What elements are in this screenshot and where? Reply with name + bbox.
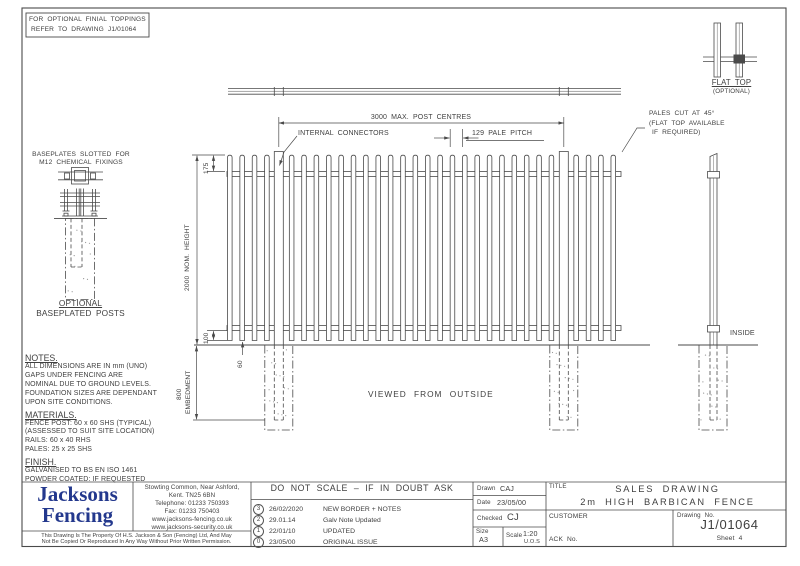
- baseplate-detail: [54, 168, 107, 300]
- date-value: 23/05/00: [497, 499, 526, 507]
- flat-top-detail: [703, 23, 757, 77]
- dim-pale-pitch: 129 PALE PITCH: [472, 130, 532, 138]
- list-line: GAPS UNDER FENCING ARE: [25, 372, 215, 381]
- revision-number: 0: [253, 537, 264, 548]
- pale: [265, 155, 270, 340]
- baseplate-caption-line1: OPTIONAL: [28, 299, 133, 308]
- do-not-scale-banner: DO NOT SCALE – IF IN DOUBT ASK: [251, 483, 473, 493]
- list-line: www.jacksons-fencing.co.uk: [134, 516, 250, 524]
- pale: [289, 155, 294, 340]
- list-line: www.jacksons-security.co.uk: [134, 524, 250, 532]
- property-notice: This Drawing Is The Property Of H.S. Jac…: [23, 533, 250, 546]
- scale-label: Scale: [506, 533, 522, 540]
- property-notice-line2: Not Be Copied Or Reproduced In Any Way W…: [23, 539, 250, 545]
- revision-row: 326/02/2020NEW BORDER + NOTES: [253, 501, 472, 512]
- drawing-sheet: FOR OPTIONAL FINIAL TOPPINGS REFER TO DR…: [0, 0, 800, 566]
- pale: [314, 155, 319, 340]
- list-line: (ASSESSED TO SUIT SITE LOCATION): [25, 428, 215, 437]
- pale: [228, 155, 233, 340]
- fence-post-left: [274, 152, 283, 346]
- pale: [388, 155, 393, 340]
- scale-value: 1:20: [523, 530, 538, 538]
- baseplate-note-line2: M12 CHEMICAL FIXINGS: [29, 159, 133, 166]
- pale: [450, 155, 455, 340]
- label-internal-connectors: INTERNAL CONNECTORS: [298, 130, 389, 138]
- dim-ground-gap: 60: [237, 360, 244, 368]
- finial-note-line2: REFER TO DRAWING J1/01064: [31, 26, 136, 33]
- pale: [611, 155, 616, 340]
- footing-right: [550, 345, 578, 430]
- property-notice-line1: This Drawing Is The Property Of H.S. Jac…: [23, 533, 250, 539]
- pales-cut-note-line2: (FLAT TOP AVAILABLE: [649, 120, 725, 127]
- drawing-title-line2: 2m HIGH BARBICAN FENCE: [560, 497, 775, 507]
- pales-group: [228, 155, 616, 340]
- drawn-label: Drawn: [477, 486, 496, 493]
- notes-lines: ALL DIMENSIONS ARE IN mm (UNO)GAPS UNDER…: [25, 363, 215, 408]
- revision-table: 326/02/2020NEW BORDER + NOTES229.01.14Ga…: [253, 501, 472, 545]
- revision-row: 229.01.14Galv Note Updated: [253, 512, 472, 523]
- dim-rail-offset: 100: [203, 333, 210, 344]
- pale: [376, 155, 381, 340]
- dim-nom-height: 2000 NOM. HEIGHT: [184, 224, 191, 291]
- finial-note-line1: FOR OPTIONAL FINIAL TOPPINGS: [29, 16, 146, 23]
- dim-top-offset: 175: [203, 162, 210, 173]
- revision-row: 023/05/00ORIGINAL ISSUE: [253, 534, 472, 545]
- drawn-value: CAJ: [500, 485, 514, 493]
- materials-lines: FENCE POST: 60 x 60 SHS (TYPICAL)(ASSESS…: [25, 420, 215, 456]
- plan-view-strip: [228, 87, 621, 96]
- list-line: NOMINAL DUE TO GROUND LEVELS.: [25, 381, 215, 390]
- footing-left: [265, 345, 293, 430]
- list-line: Kent. TN25 6BN: [134, 492, 250, 500]
- size-value: A3: [479, 536, 488, 544]
- list-line: ALL DIMENSIONS ARE IN mm (UNO): [25, 363, 215, 372]
- pale: [413, 155, 418, 340]
- revision-description: ORIGINAL ISSUE: [323, 539, 378, 546]
- baseplate-note-line1: BASEPLATES SLOTTED FOR: [29, 151, 133, 158]
- pale: [524, 155, 529, 340]
- date-label: Date: [477, 500, 491, 507]
- pales-cut-note-line3: IF REQUIRED): [652, 129, 701, 136]
- company-logo-line2: Fencing: [22, 505, 133, 526]
- pale: [574, 155, 579, 340]
- pale: [252, 155, 257, 340]
- pale: [364, 155, 369, 340]
- notes-heading: NOTES.: [25, 353, 215, 363]
- list-line: Stowting Common, Near Ashford,: [134, 484, 250, 492]
- revision-row: 122/01/10UPDATED: [253, 523, 472, 534]
- dim-post-centres: 3000 MAX. POST CENTRES: [331, 114, 511, 122]
- pale: [537, 155, 542, 340]
- finish-heading: FINISH.: [25, 457, 215, 467]
- materials-heading: MATERIALS.: [25, 410, 215, 420]
- revision-date: 23/05/00: [269, 539, 323, 546]
- pale: [599, 155, 604, 340]
- pale: [351, 155, 356, 340]
- pale: [425, 155, 430, 340]
- company-address: Stowting Common, Near Ashford,Kent. TN25…: [134, 484, 250, 531]
- label-viewed-from-outside: VIEWED FROM OUTSIDE: [368, 390, 494, 399]
- rail-connector-block: [734, 55, 746, 64]
- list-line: FENCE POST: 60 x 60 SHS (TYPICAL): [25, 420, 215, 429]
- list-line: GALVANISED TO BS EN ISO 1461: [25, 467, 215, 476]
- list-line: Fax: 01233 750403: [134, 508, 250, 516]
- list-line: FOUNDATION SIZES ARE DEPENDANT: [25, 390, 215, 399]
- drawing-title-line1: SALES DRAWING: [560, 484, 775, 494]
- pale: [302, 155, 307, 340]
- notes-section: NOTES. ALL DIMENSIONS ARE IN mm (UNO)GAP…: [25, 351, 215, 485]
- ack-no-label: ACK No.: [549, 536, 578, 543]
- drawing-no-value: J1/01064: [673, 518, 786, 532]
- pale: [240, 155, 245, 340]
- pale: [549, 155, 554, 340]
- list-line: UPON SITE CONDITIONS.: [25, 399, 215, 408]
- scale-suffix: U.O.S: [524, 539, 540, 545]
- flat-top-label: FLAT TOP: [703, 79, 760, 88]
- pale: [500, 155, 505, 340]
- post-side-elevation: [678, 154, 758, 431]
- fence-post-right: [559, 152, 568, 346]
- pale: [487, 155, 492, 340]
- list-line: PALES: 25 x 25 SHS: [25, 446, 215, 455]
- pales-cut-note-line1: PALES CUT AT 45°: [649, 110, 715, 117]
- company-logo: Jacksons Fencing: [22, 484, 133, 526]
- sheet-number: Sheet 4: [673, 535, 786, 542]
- pale: [339, 155, 344, 340]
- customer-label: CUSTOMER: [549, 513, 588, 520]
- flat-top-sublabel: (OPTIONAL): [703, 89, 760, 96]
- pale: [401, 155, 406, 340]
- pale: [586, 155, 591, 340]
- pale: [326, 155, 331, 340]
- checked-value: CJ: [507, 513, 519, 523]
- checked-label: Checked: [477, 516, 502, 523]
- pale: [512, 155, 517, 340]
- baseplate-caption-line2: BASEPLATED POSTS: [28, 309, 133, 318]
- label-inside: INSIDE: [730, 329, 755, 337]
- list-line: RAILS: 60 x 40 RHS: [25, 437, 215, 446]
- pale: [438, 155, 443, 340]
- pale: [475, 155, 480, 340]
- company-logo-line1: Jacksons: [22, 484, 133, 505]
- list-line: Telephone: 01233 750393: [134, 500, 250, 508]
- pale: [463, 155, 468, 340]
